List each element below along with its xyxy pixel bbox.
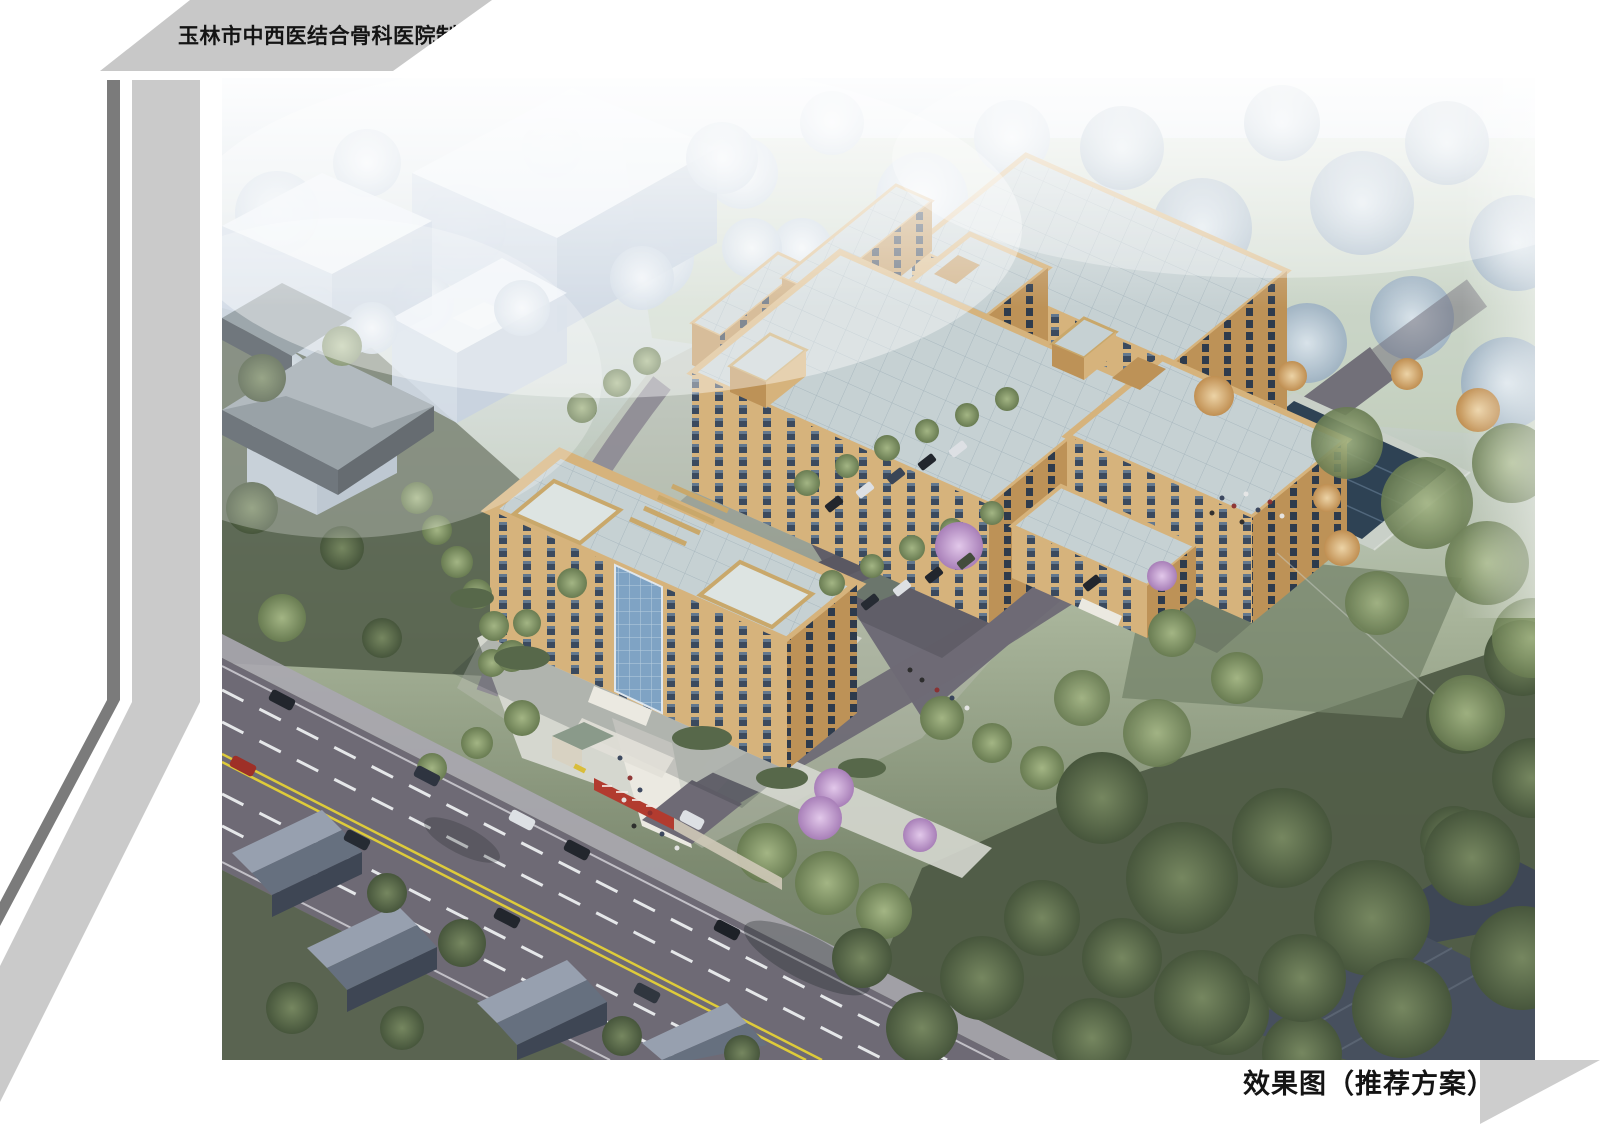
presentation-page: { "page": { "title": "玉林市中西医结合骨科医院制剂中心",… xyxy=(0,0,1600,1131)
page-title: 玉林市中西医结合骨科医院制剂中心 xyxy=(178,19,488,49)
corner-triangle-deco xyxy=(1480,1060,1600,1124)
stripe-light xyxy=(0,80,200,1102)
rendering-image xyxy=(222,78,1535,1060)
aerial-rendering-scene xyxy=(222,78,1535,1060)
left-deco-stripes xyxy=(0,0,230,1131)
caption: 效果图（推荐方案） xyxy=(1243,1062,1495,1101)
glass-curtain-wall xyxy=(615,565,662,713)
